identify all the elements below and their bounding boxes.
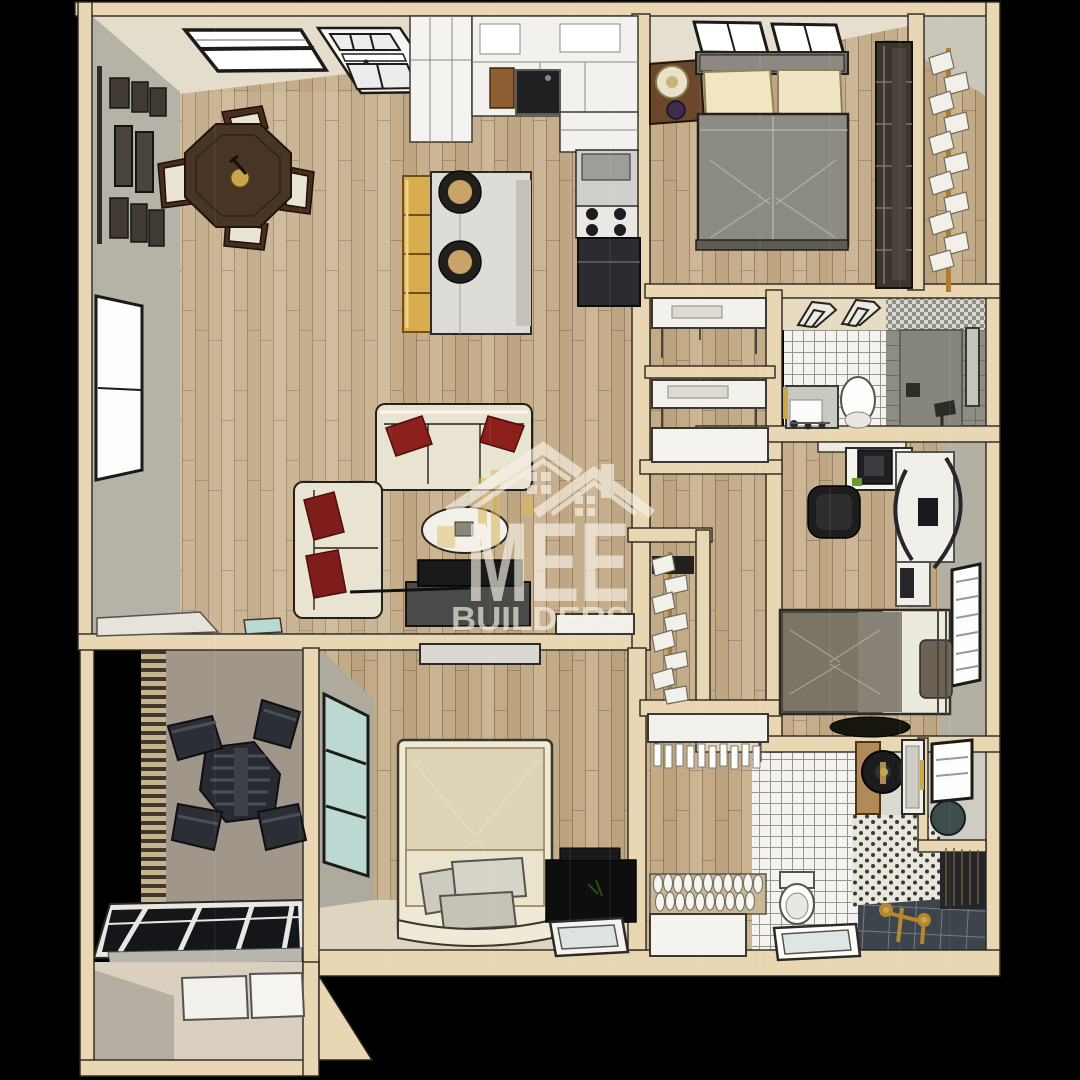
svg-text:BUILDERS: BUILDERS xyxy=(451,600,629,637)
